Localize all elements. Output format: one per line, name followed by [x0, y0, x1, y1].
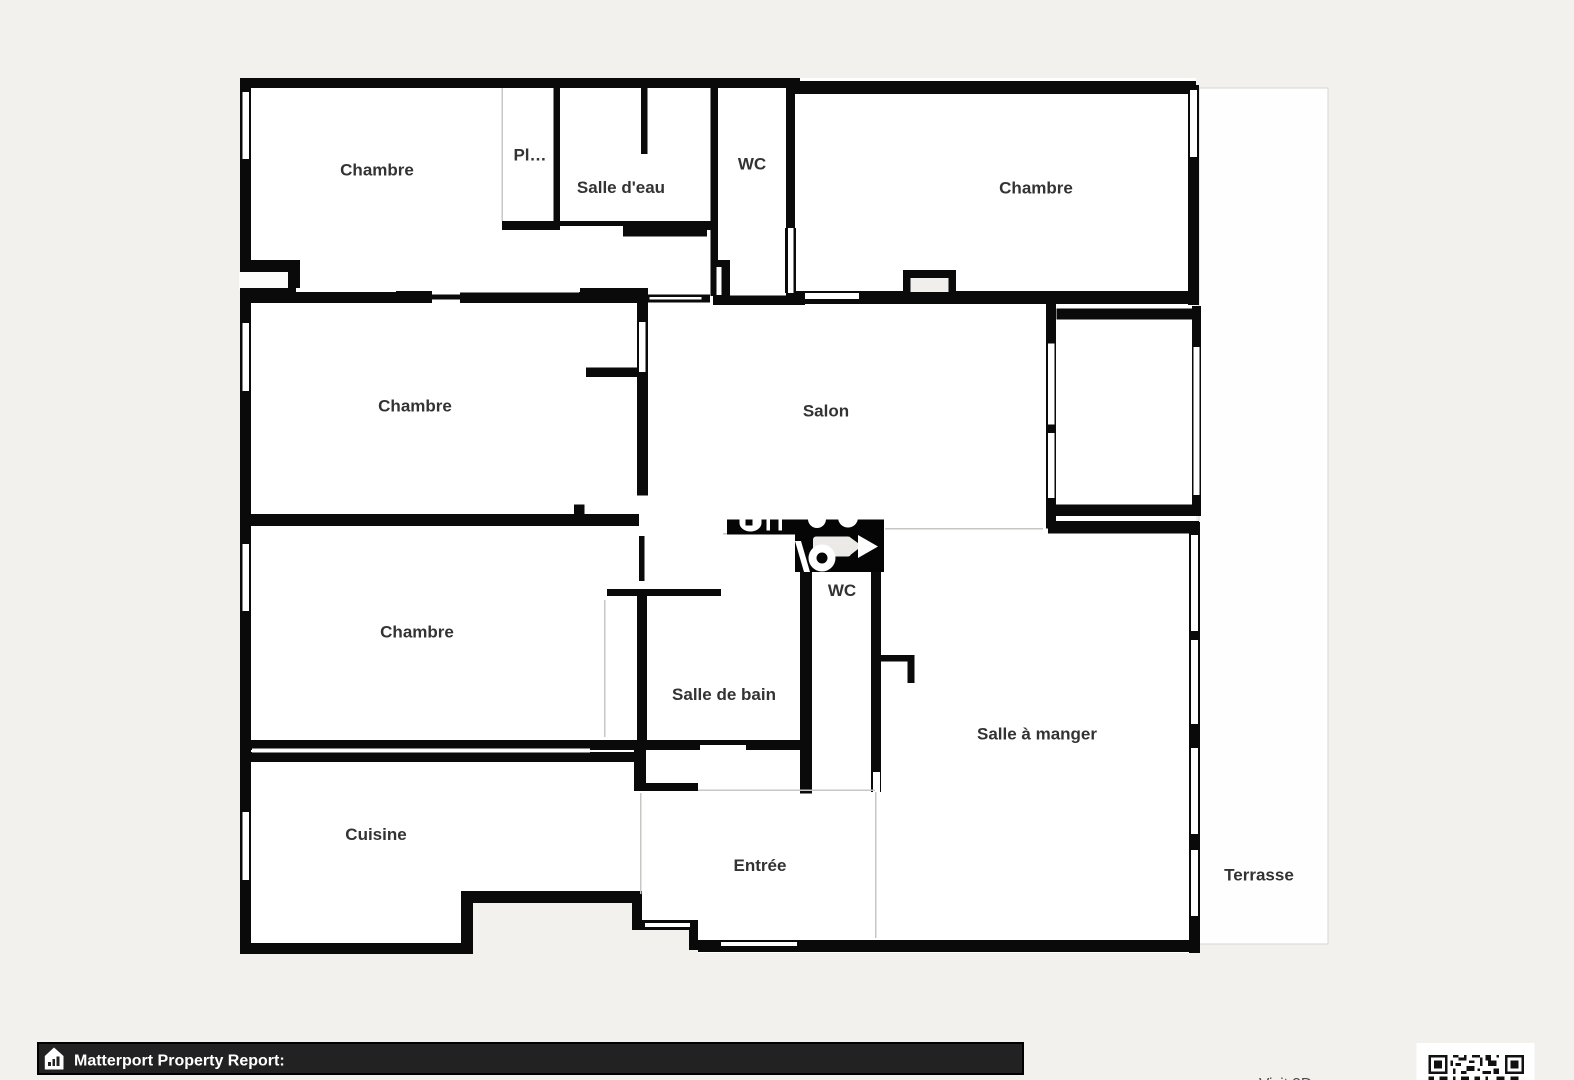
svg-text:Terrasse: Terrasse [1224, 866, 1294, 885]
svg-text:Visit 3D space: Visit 3D space [1259, 1076, 1358, 1080]
svg-text:Chambre: Chambre [378, 397, 452, 416]
svg-text:WC: WC [738, 155, 766, 174]
svg-text:Salle de bain: Salle de bain [672, 685, 776, 704]
svg-text:Pl…: Pl… [513, 146, 546, 165]
svg-text:Chambre: Chambre [999, 179, 1073, 198]
svg-text:Salle à manger: Salle à manger [977, 725, 1097, 744]
svg-text:WC: WC [828, 581, 856, 600]
svg-text:Chambre: Chambre [380, 623, 454, 642]
svg-text:Salle d'eau: Salle d'eau [577, 178, 665, 197]
svg-text:Salon: Salon [803, 402, 849, 421]
svg-text:Matterport Property Report:: Matterport Property Report: [74, 1053, 285, 1070]
svg-text:Chambre: Chambre [340, 161, 414, 180]
svg-text:Cuisine: Cuisine [345, 825, 406, 844]
svg-text:Entrée: Entrée [734, 856, 787, 875]
